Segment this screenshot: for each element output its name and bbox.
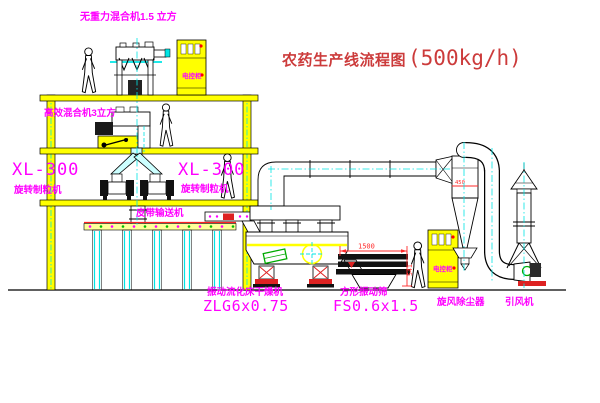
label-granulator-center-model: XL-300 — [178, 162, 245, 179]
worker-icon — [82, 48, 95, 93]
screen-height-dim: 541 — [406, 264, 414, 276]
screen-length-dim: 1500 — [358, 243, 375, 251]
label-dryer-model: ZLG6x0.75 — [203, 299, 289, 314]
control-cabinet: 电控柜 — [428, 230, 458, 288]
cyclone-dia-dim: 450 — [455, 180, 465, 186]
belt-conveyor — [84, 223, 236, 291]
diagram-title: 农药生产线流程图 (500kg/h) — [282, 46, 522, 70]
gravity-free-mixer — [110, 42, 170, 95]
vibrating-screen — [336, 254, 410, 288]
label-high-eff-mixer: 高效混合机3立方 — [44, 109, 116, 119]
label-screen-model: FS0.6x1.5 — [333, 299, 419, 314]
cabinet-label: 电控柜 — [433, 264, 453, 273]
label-granulator-center-name: 旋转制粒机 — [181, 185, 229, 195]
worker-icon — [160, 104, 173, 146]
label-granulator-left-name: 旋转制粒机 — [14, 186, 62, 196]
control-cabinet: 电控柜 — [177, 40, 206, 95]
process-flow-diagram: 电控柜 — [0, 0, 600, 403]
label-granulator-left-model: XL-300 — [12, 162, 79, 179]
cabinet-label: 电控柜 — [182, 71, 202, 80]
label-gravity-mixer: 无重力混合机1.5 立方 — [80, 13, 177, 23]
induced-draft-fan — [514, 262, 546, 286]
label-fan: 引风机 — [505, 298, 534, 308]
cyclone-separator: 450 — [452, 143, 478, 271]
fluid-bed-dryer — [246, 206, 362, 288]
title-capacity: (500kg/h) — [408, 46, 522, 70]
label-cyclone: 旋风除尘器 — [437, 298, 485, 308]
title-text: 农药生产线流程图 — [282, 49, 406, 70]
conveyor-legs — [93, 230, 222, 290]
exhaust-duct — [258, 156, 454, 206]
label-belt-conveyor: 皮带输送机 — [136, 209, 184, 219]
